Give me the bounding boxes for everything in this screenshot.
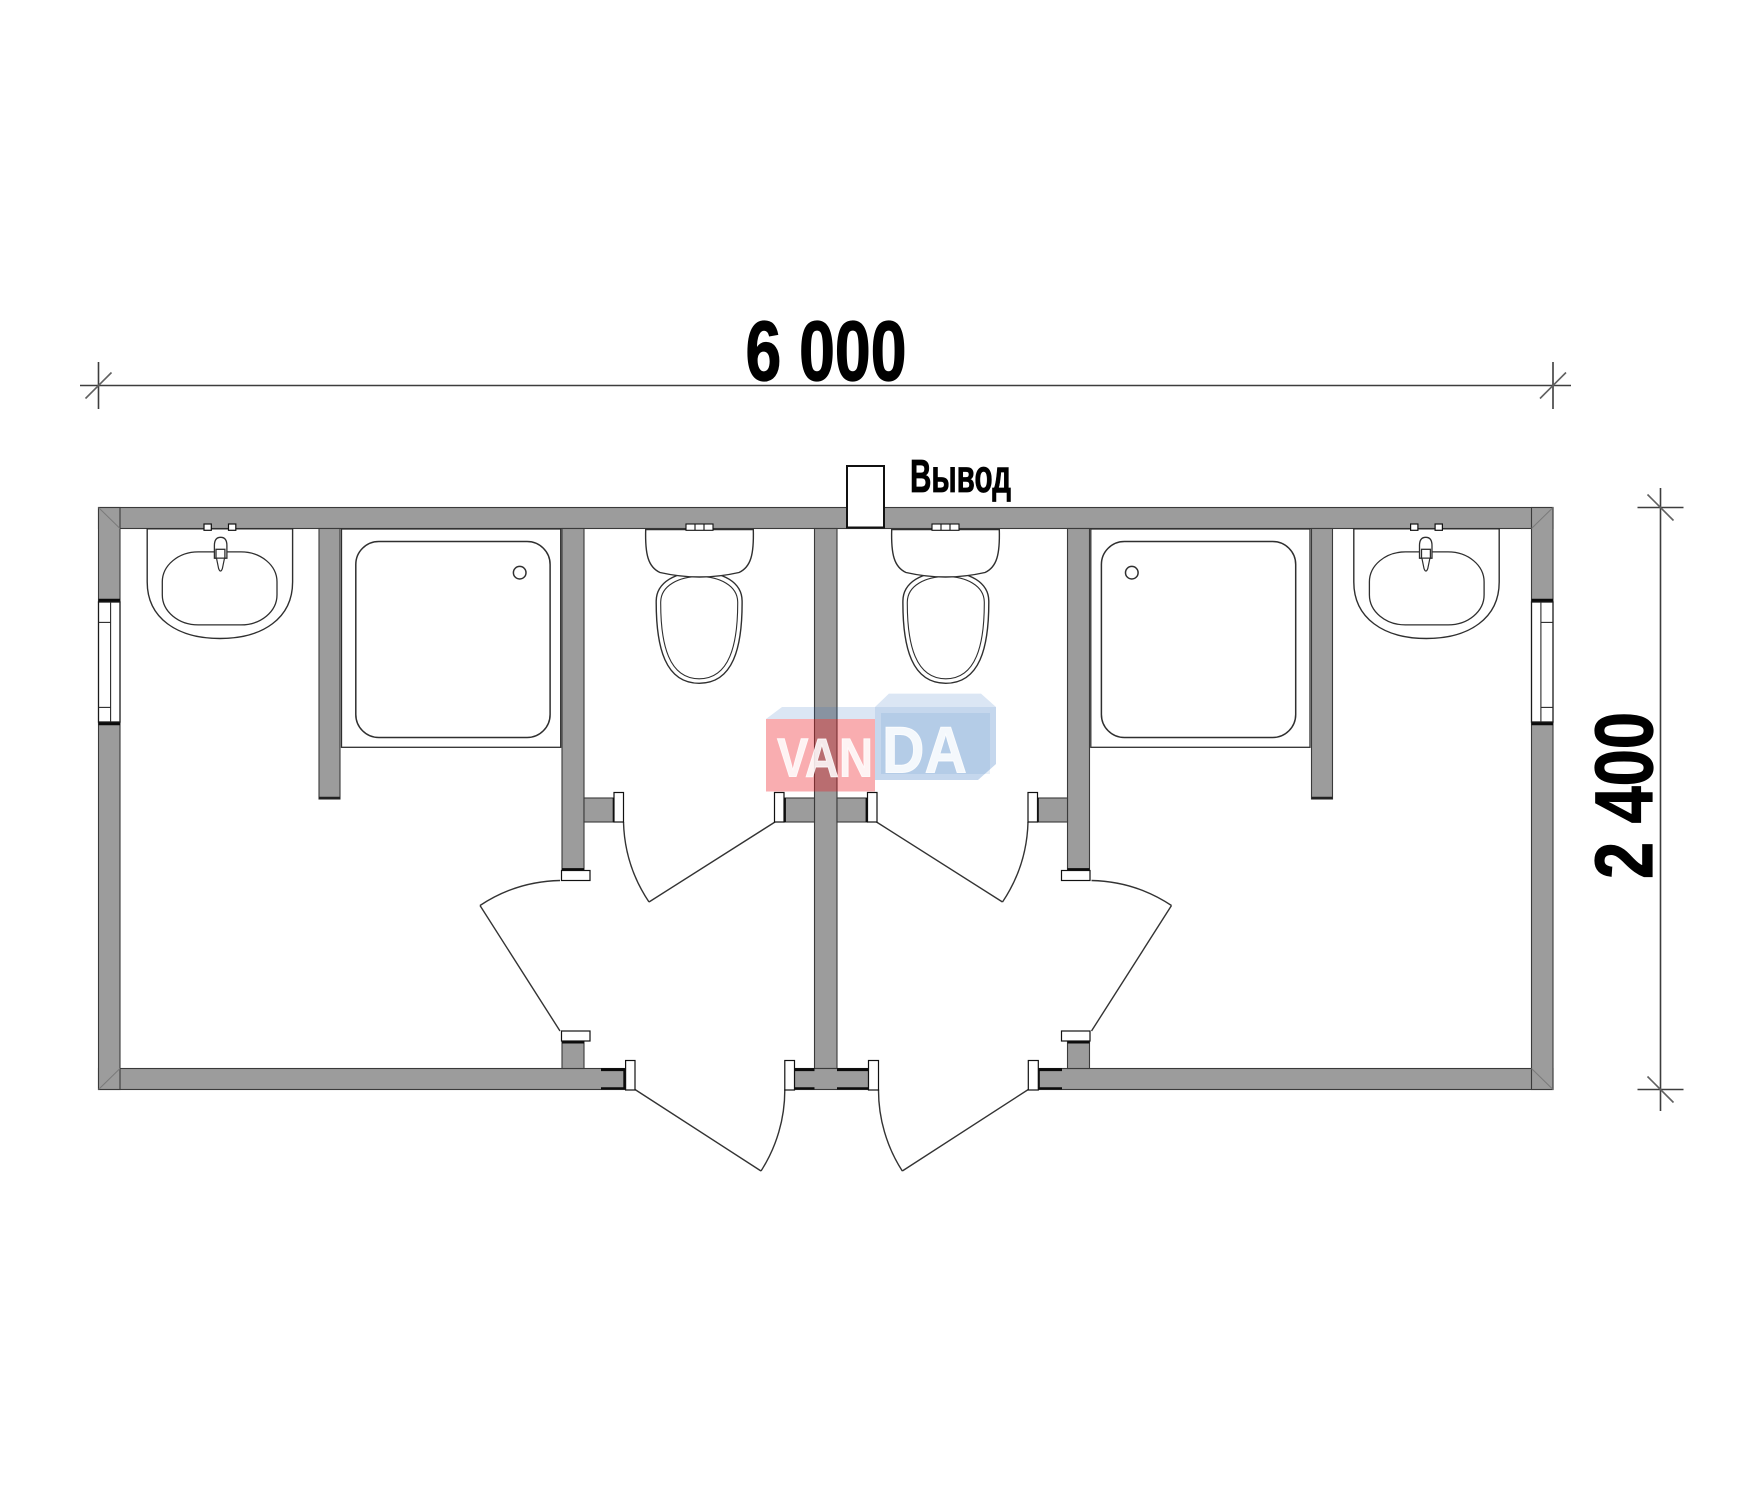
- svg-text:2 400: 2 400: [1579, 712, 1670, 879]
- svg-text:VAN: VAN: [777, 727, 873, 789]
- svg-text:DA: DA: [882, 713, 967, 787]
- svg-text:Вывод: Вывод: [910, 450, 1011, 502]
- svg-text:6 000: 6 000: [746, 304, 907, 398]
